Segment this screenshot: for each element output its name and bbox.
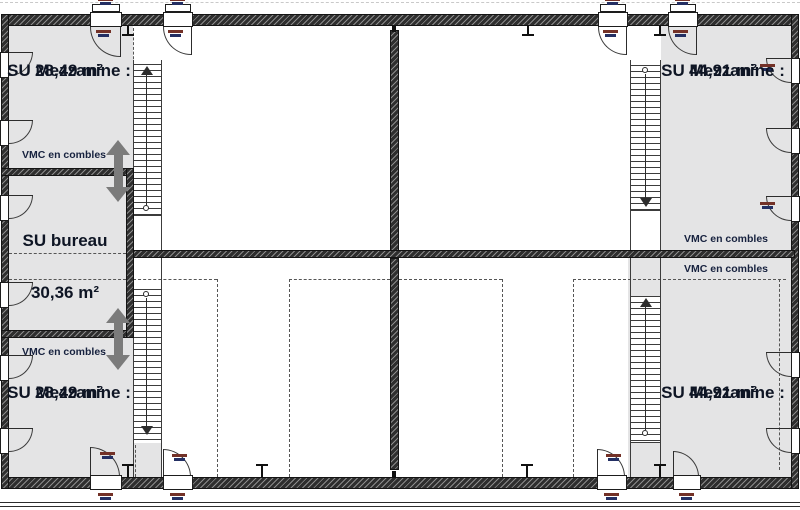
door-leaf xyxy=(9,52,33,53)
wall-center-vertical-lower xyxy=(390,258,399,470)
post-icon xyxy=(526,466,528,477)
door-leaf xyxy=(191,27,192,55)
dimension-tag xyxy=(673,30,688,37)
room-area: 44,91 m² xyxy=(689,382,757,403)
vmc-label: VMC en combles xyxy=(22,149,106,161)
window-sill xyxy=(600,4,626,12)
dimension-tag xyxy=(675,0,690,5)
post-icon xyxy=(522,34,534,36)
dashed-line-horizontal xyxy=(9,279,126,280)
stair-walkline-start xyxy=(642,430,648,436)
wall-tick xyxy=(392,471,396,477)
door-leaf xyxy=(597,449,598,477)
door-leaf xyxy=(626,27,627,55)
vmc-label: VMC en combles xyxy=(684,263,766,275)
dimension-tag xyxy=(603,30,618,37)
door-leaf xyxy=(90,447,91,477)
door-opening xyxy=(163,475,193,490)
stair-walkline-start xyxy=(143,291,149,297)
door-opening xyxy=(90,475,122,490)
dashed-line-vertical xyxy=(573,279,574,487)
dashed-line-horizontal xyxy=(289,279,390,280)
floor-plan: VMC en combles VMC en combles VMC en com… xyxy=(0,0,800,510)
vmc-label: VMC en combles xyxy=(22,346,106,358)
stair-walkline xyxy=(146,298,147,426)
stair-arrow-down-icon xyxy=(141,426,153,435)
dimension-tag xyxy=(172,454,187,461)
stair-walkline xyxy=(645,306,646,430)
stair-walkline-start xyxy=(642,67,648,73)
wall-center-vertical-upper xyxy=(390,30,399,252)
window-opening xyxy=(0,428,9,454)
door-leaf xyxy=(696,27,697,55)
window-opening xyxy=(791,58,800,84)
room-area: 44,91 m² xyxy=(689,60,757,81)
window-opening xyxy=(791,352,800,378)
post-icon xyxy=(261,466,263,477)
post-icon xyxy=(127,466,129,477)
room-area: 28,49 m² xyxy=(35,60,103,81)
stair-flight-lower-left xyxy=(133,289,162,440)
stair-arrow-down-icon xyxy=(640,198,652,207)
stair-walkline xyxy=(645,74,646,198)
dimension-tag xyxy=(98,493,113,500)
window-opening xyxy=(0,355,9,381)
vmc-arrow xyxy=(106,308,130,370)
door-leaf xyxy=(673,451,674,477)
door-opening xyxy=(668,12,698,27)
vmc-arrow xyxy=(106,140,130,202)
facade-baseline xyxy=(0,502,800,507)
door-opening xyxy=(673,475,701,490)
wall-left xyxy=(1,14,9,489)
window-opening xyxy=(0,195,9,221)
door-leaf xyxy=(766,128,791,129)
window-opening xyxy=(0,120,9,146)
door-leaf xyxy=(9,120,33,121)
dimension-tag xyxy=(605,0,620,5)
dimension-tag xyxy=(168,30,183,37)
stair-flight-upper-left xyxy=(133,64,162,216)
post-icon xyxy=(122,34,134,36)
dimension-tag xyxy=(679,493,694,500)
dimension-tag xyxy=(170,0,185,5)
stair-walkline xyxy=(146,74,147,206)
stair-walkline-start xyxy=(143,205,149,211)
dashed-line-vertical xyxy=(502,279,503,487)
door-leaf xyxy=(9,195,33,196)
dimension-tag xyxy=(760,202,775,209)
dimension-tag xyxy=(100,452,115,459)
dimension-tag xyxy=(604,493,619,500)
room-label-bureau-area: 30,36 m² xyxy=(4,283,126,303)
window-opening xyxy=(791,128,800,154)
post-icon xyxy=(654,34,666,36)
dashed-line-horizontal xyxy=(573,279,786,280)
window-opening xyxy=(598,12,628,27)
dimension-tag xyxy=(96,30,111,37)
window-opening xyxy=(791,428,800,454)
dashed-line-horizontal xyxy=(9,253,126,254)
room-area: 28,49 m² xyxy=(35,382,103,403)
door-opening xyxy=(597,475,627,490)
window-sill xyxy=(670,4,696,12)
window-sill xyxy=(165,4,191,12)
door-leaf xyxy=(9,428,33,429)
wall-center-horizontal xyxy=(130,250,795,258)
dimension-tag xyxy=(606,454,621,461)
room-label-bureau-name: SU bureau xyxy=(4,231,126,251)
dashed-line-horizontal xyxy=(399,279,502,280)
door-leaf xyxy=(163,449,164,477)
dimension-tag xyxy=(170,493,185,500)
wall-tick xyxy=(392,26,396,32)
door-leaf xyxy=(766,196,791,197)
door-leaf xyxy=(766,428,791,429)
post-icon xyxy=(659,466,661,477)
window-opening xyxy=(791,196,800,222)
door-leaf xyxy=(120,27,121,57)
dashed-line-vertical xyxy=(289,279,290,487)
dashed-line-vertical xyxy=(217,279,218,487)
window-opening xyxy=(163,12,193,27)
window-opening xyxy=(90,12,122,27)
window-sill xyxy=(92,4,120,12)
door-leaf xyxy=(766,352,791,353)
dimension-tag xyxy=(98,0,113,5)
vmc-label: VMC en combles xyxy=(684,233,766,245)
